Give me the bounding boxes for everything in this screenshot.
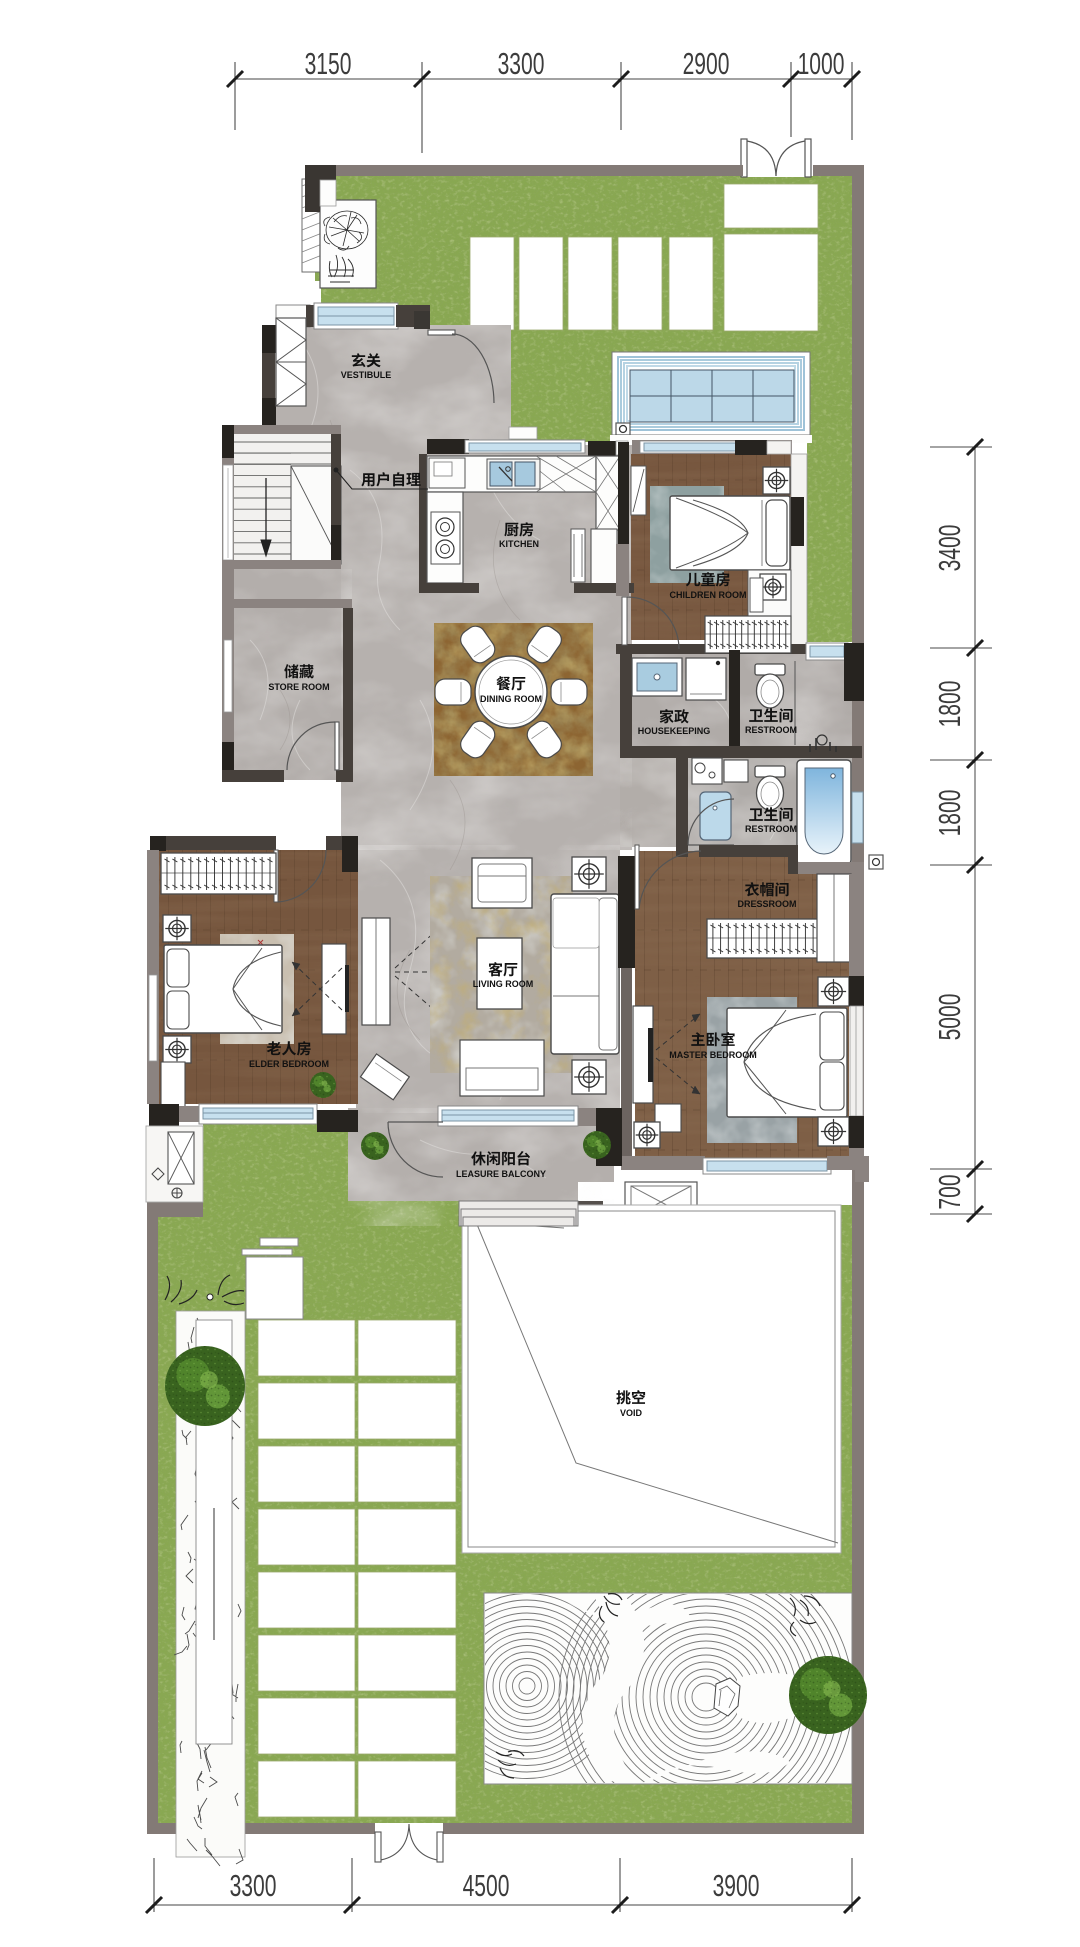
svg-text:VESTIBULE: VESTIBULE — [341, 370, 392, 380]
svg-text:1800: 1800 — [932, 681, 967, 728]
svg-text:1800: 1800 — [932, 790, 967, 837]
svg-text:HOUSEKEEPING: HOUSEKEEPING — [638, 726, 711, 736]
svg-text:RESTROOM: RESTROOM — [745, 725, 797, 735]
svg-text:3300: 3300 — [498, 46, 545, 81]
svg-text:DRESSROOM: DRESSROOM — [737, 899, 796, 909]
svg-text:VOID: VOID — [620, 1408, 643, 1418]
svg-text:ELDER BEDROOM: ELDER BEDROOM — [249, 1059, 329, 1069]
svg-text:3300: 3300 — [230, 1868, 277, 1903]
svg-text:MASTER BEDROOM: MASTER BEDROOM — [669, 1050, 757, 1060]
svg-text:3900: 3900 — [713, 1868, 760, 1903]
svg-text:1000: 1000 — [798, 46, 845, 81]
svg-text:KITCHEN: KITCHEN — [499, 539, 539, 549]
svg-text:3150: 3150 — [305, 46, 352, 81]
svg-text:3400: 3400 — [932, 525, 967, 572]
svg-text:CHILDREN ROOM: CHILDREN ROOM — [670, 590, 747, 600]
svg-text:700: 700 — [932, 1174, 967, 1209]
svg-text:4500: 4500 — [463, 1868, 510, 1903]
svg-text:LEASURE BALCONY: LEASURE BALCONY — [456, 1169, 546, 1179]
svg-text:2900: 2900 — [683, 46, 730, 81]
svg-text:LIVING ROOM: LIVING ROOM — [473, 979, 534, 989]
svg-text:DINING ROOM: DINING ROOM — [480, 694, 542, 704]
svg-text:RESTROOM: RESTROOM — [745, 824, 797, 834]
svg-text:5000: 5000 — [932, 994, 967, 1041]
svg-text:STORE ROOM: STORE ROOM — [268, 682, 329, 692]
